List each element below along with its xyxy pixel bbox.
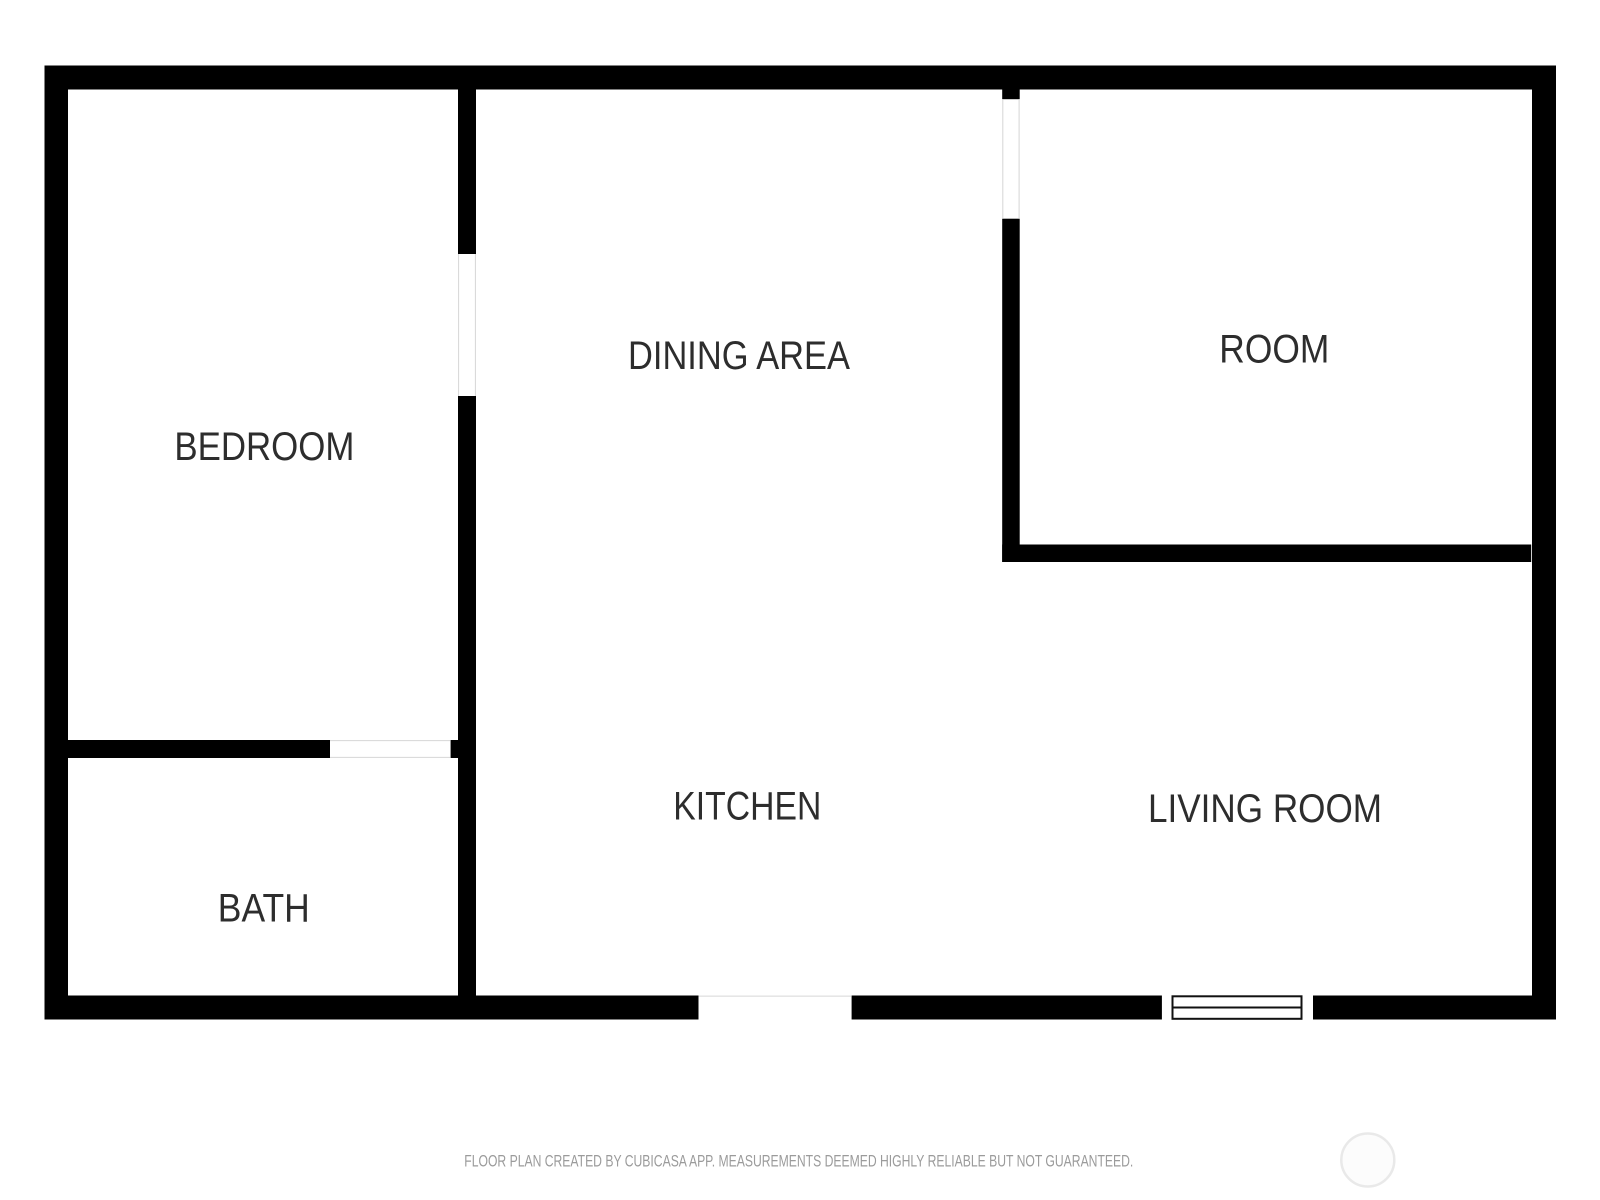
svg-text:FLOOR PLAN CREATED BY CUBICASA: FLOOR PLAN CREATED BY CUBICASA APP. MEAS… xyxy=(464,1152,1133,1170)
svg-text:BATH: BATH xyxy=(218,887,310,931)
svg-text:DINING AREA: DINING AREA xyxy=(628,334,850,378)
svg-text:LIVING ROOM: LIVING ROOM xyxy=(1148,787,1382,831)
svg-text:ROOM: ROOM xyxy=(1219,328,1329,372)
svg-text:KITCHEN: KITCHEN xyxy=(673,785,821,829)
svg-text:BEDROOM: BEDROOM xyxy=(174,425,354,469)
